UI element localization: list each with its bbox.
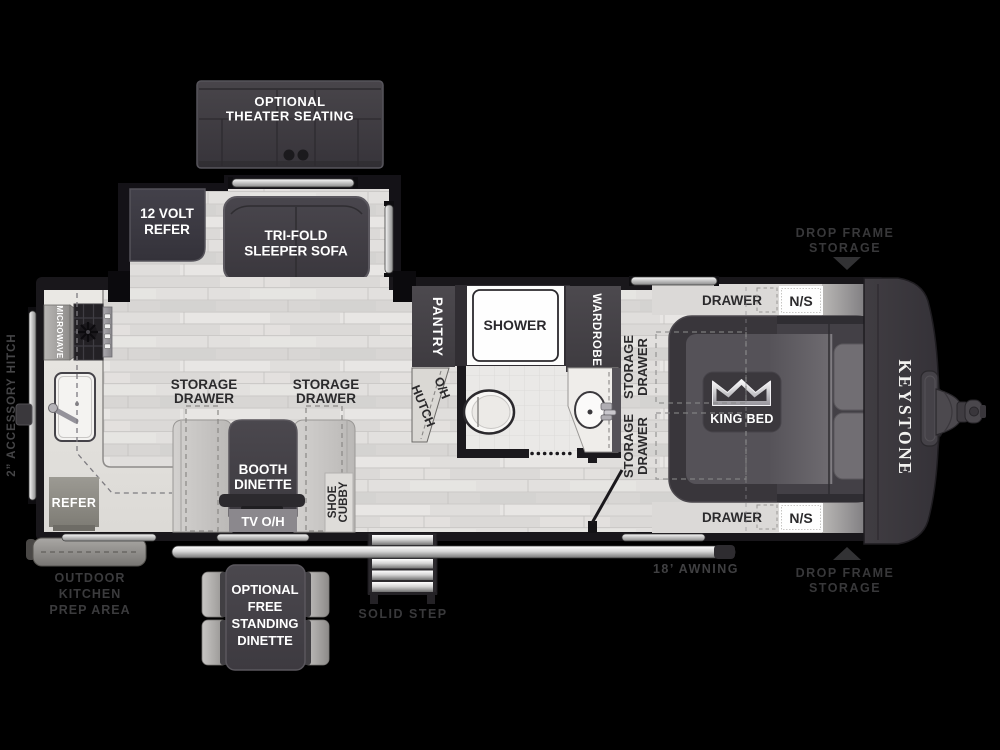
svg-text:18’ AWNING: 18’ AWNING [653,562,739,576]
svg-text:STORAGE: STORAGE [293,377,360,392]
svg-text:DINETTE: DINETTE [237,633,293,648]
svg-text:STORAGE: STORAGE [809,581,881,595]
svg-text:DROP FRAME: DROP FRAME [796,226,895,240]
svg-text:DRAWER: DRAWER [702,510,762,525]
svg-text:THEATER SEATING: THEATER SEATING [226,109,354,124]
svg-text:MICROWAVE: MICROWAVE [55,305,64,358]
svg-text:N/S: N/S [789,293,812,309]
svg-text:STORAGE: STORAGE [621,335,636,399]
svg-text:SHOWER: SHOWER [484,317,547,333]
svg-text:STORAGE: STORAGE [809,241,881,255]
svg-text:KEYSTONE: KEYSTONE [895,360,915,477]
svg-text:REFER: REFER [52,496,97,510]
svg-text:SLEEPER SOFA: SLEEPER SOFA [244,244,348,259]
svg-text:DRAWER: DRAWER [174,391,234,406]
svg-text:DRAWER: DRAWER [635,417,650,475]
svg-text:DINETTE: DINETTE [234,477,292,492]
svg-text:FREE: FREE [248,599,283,614]
svg-text:OUTDOOR: OUTDOOR [55,571,126,585]
svg-text:OPTIONAL: OPTIONAL [231,582,298,597]
svg-text:DRAWER: DRAWER [702,293,762,308]
svg-text:PANTRY: PANTRY [430,297,445,357]
svg-text:TRI-FOLD: TRI-FOLD [265,228,328,243]
svg-text:DRAWER: DRAWER [296,391,356,406]
svg-text:DRAWER: DRAWER [635,338,650,396]
svg-text:12 VOLT: 12 VOLT [140,206,195,221]
svg-text:TV O/H: TV O/H [241,514,284,529]
svg-text:PREP AREA: PREP AREA [49,603,130,617]
svg-text:2” ACCESSORY HITCH: 2” ACCESSORY HITCH [6,333,18,476]
svg-text:REFER: REFER [144,222,190,237]
svg-text:STANDING: STANDING [232,616,299,631]
svg-text:CUBBY: CUBBY [338,481,350,522]
svg-text:STORAGE: STORAGE [171,377,238,392]
svg-text:OPTIONAL: OPTIONAL [254,94,325,109]
svg-text:BOOTH: BOOTH [239,462,288,477]
svg-text:DROP FRAME: DROP FRAME [796,566,895,580]
svg-text:STORAGE: STORAGE [621,414,636,478]
svg-text:WARDROBE: WARDROBE [590,293,602,366]
svg-text:KITCHEN: KITCHEN [59,587,122,601]
svg-text:N/S: N/S [789,510,812,526]
svg-text:KING BED: KING BED [710,412,774,426]
svg-text:SOLID STEP: SOLID STEP [358,607,447,621]
